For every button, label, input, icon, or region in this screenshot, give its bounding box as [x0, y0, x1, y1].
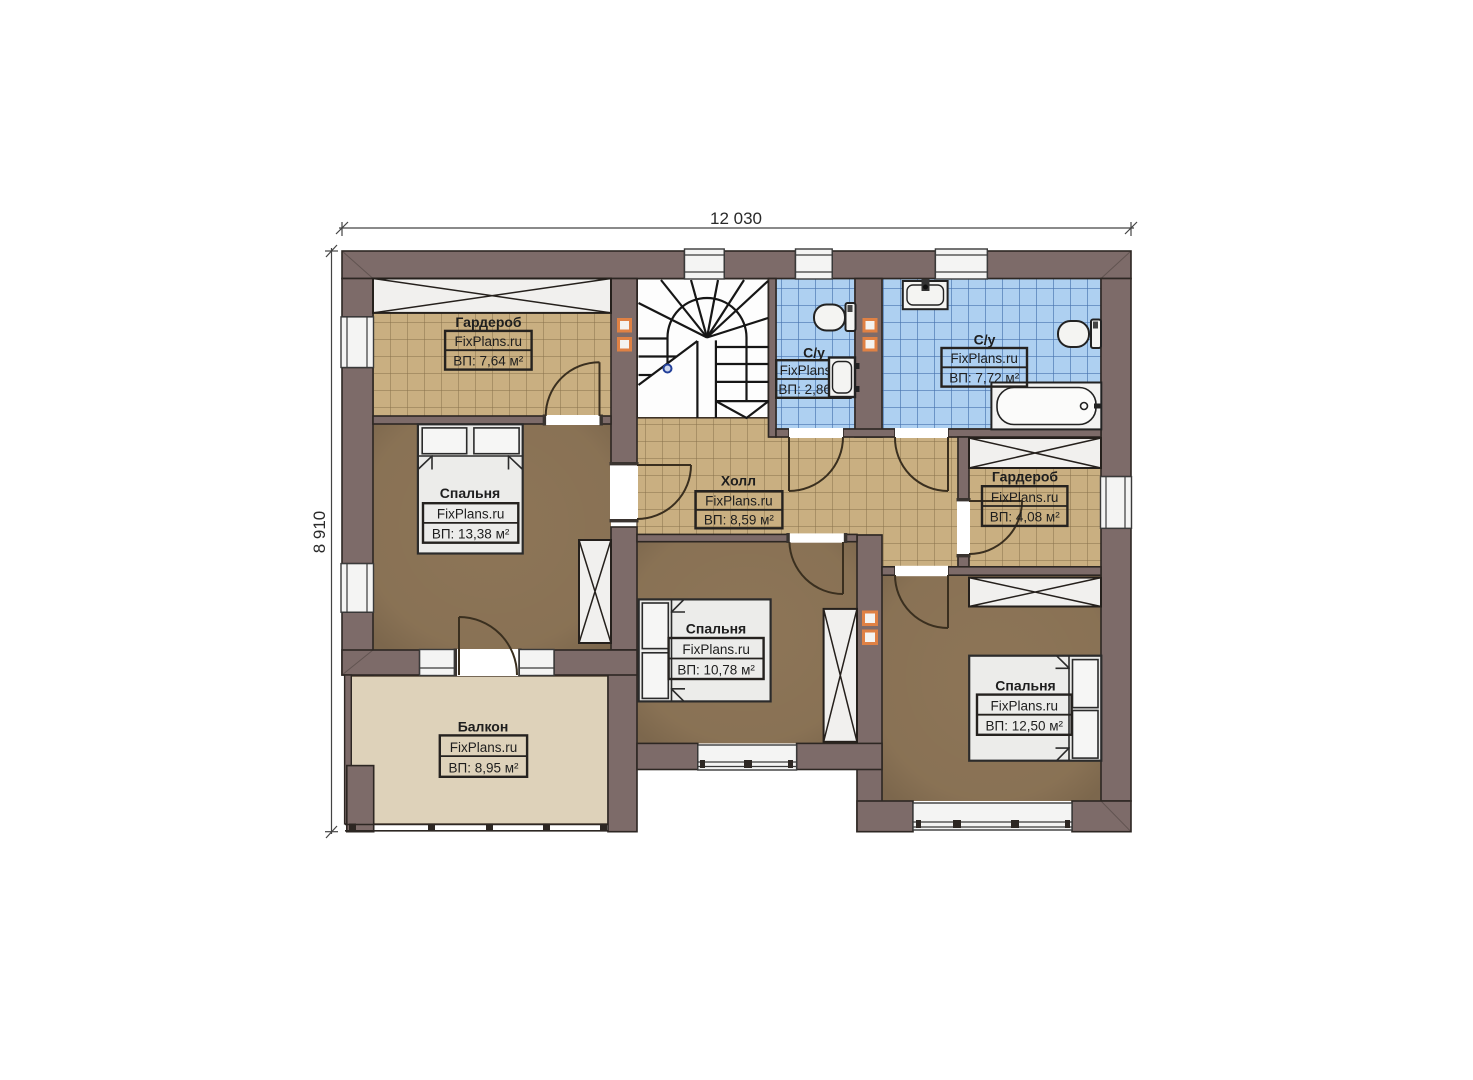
svg-text:Спальня: Спальня	[686, 621, 746, 637]
svg-text:FixPlans.ru: FixPlans.ru	[705, 494, 773, 509]
svg-text:ВП: 13,38 м²: ВП: 13,38 м²	[432, 526, 510, 541]
svg-text:ВП: 7,64 м²: ВП: 7,64 м²	[453, 354, 524, 369]
svg-text:ВП: 8,95 м²: ВП: 8,95 м²	[448, 760, 519, 775]
svg-text:FixPlans.ru: FixPlans.ru	[950, 351, 1018, 366]
svg-text:Гардероб: Гардероб	[455, 314, 522, 330]
svg-text:С/у: С/у	[974, 332, 996, 348]
svg-text:ВП: 4,08 м²: ВП: 4,08 м²	[990, 510, 1061, 525]
svg-text:ВП: 10,78 м²: ВП: 10,78 м²	[677, 663, 755, 678]
svg-text:FixPlans.ru: FixPlans.ru	[991, 490, 1059, 505]
svg-text:12 030: 12 030	[710, 209, 762, 228]
svg-text:ВП: 12,50 м²: ВП: 12,50 м²	[986, 719, 1064, 734]
svg-text:Гардероб: Гардероб	[992, 469, 1059, 485]
svg-text:Балкон: Балкон	[458, 719, 509, 735]
svg-text:Спальня: Спальня	[995, 678, 1055, 694]
svg-text:FixPlans.ru: FixPlans.ru	[455, 334, 523, 349]
svg-text:8 910: 8 910	[310, 511, 329, 554]
svg-text:FixPlans.ru: FixPlans.ru	[991, 698, 1059, 713]
svg-text:С/у: С/у	[803, 345, 825, 361]
svg-text:FixPlans.ru: FixPlans.ru	[450, 740, 518, 755]
svg-text:ВП: 8,59 м²: ВП: 8,59 м²	[704, 513, 775, 528]
svg-text:FixPlans.ru: FixPlans.ru	[682, 642, 750, 657]
svg-text:FixPlans.ru: FixPlans.ru	[437, 507, 505, 522]
svg-text:Спальня: Спальня	[440, 485, 500, 501]
svg-text:ВП: 7,72 м²: ВП: 7,72 м²	[949, 371, 1020, 386]
svg-text:Холл: Холл	[721, 473, 756, 489]
